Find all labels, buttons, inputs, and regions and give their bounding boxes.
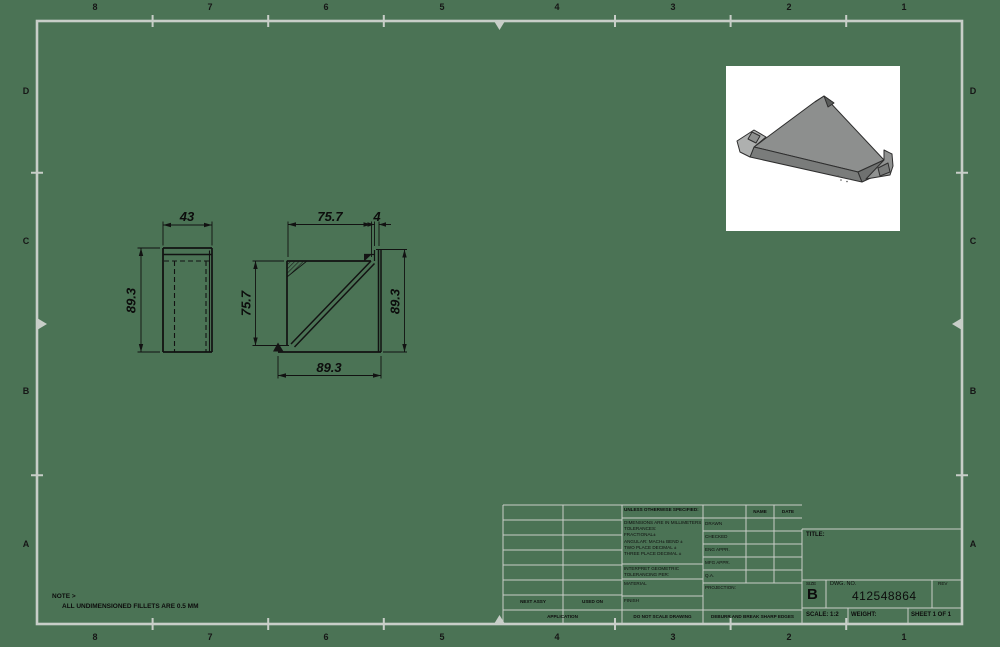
mfg-appr-row-label: MFG APPR. (705, 560, 730, 566)
used-on-label: USED ON (563, 599, 622, 605)
weight-label: WEIGHT: (851, 612, 876, 618)
deburr-label: DEBURR AND BREAK SHARP EDGES (703, 614, 802, 620)
material-label: MATERIAL (624, 581, 702, 587)
zone-label-top-1: 1 (897, 2, 911, 12)
engineering-drawing-sheet: 8 7 6 5 4 3 2 1 8 7 6 5 4 3 2 1 D C B A … (0, 0, 1000, 647)
rev-label: REV (938, 581, 947, 587)
drawn-row-label: DRAWN (705, 521, 722, 527)
title-block-lines (503, 505, 962, 624)
side-view-geometry (138, 222, 213, 353)
projection-label: PROJECTION: (705, 585, 736, 591)
do-not-scale-label: DO NOT SCALE DRAWING (622, 614, 703, 620)
zone-label-right-c: C (966, 236, 980, 246)
title-label: TITLE: (806, 531, 825, 539)
next-assy-label: NEXT ASSY (503, 599, 563, 605)
dim-front-right: 89.3 (388, 284, 403, 320)
zone-label-bottom-8: 8 (88, 632, 102, 642)
dim-front-left: 75.7 (239, 286, 254, 322)
zone-label-top-4: 4 (550, 2, 564, 12)
note-text: ALL UNDIMENSIONED FILLETS ARE 0.5 MM (62, 603, 199, 610)
dimension-arrowheads (139, 222, 407, 377)
zone-label-left-b: B (19, 386, 33, 396)
dim-front-flange: 4 (369, 209, 385, 224)
drawing-geometry-svg (0, 0, 1000, 647)
zone-label-bottom-7: 7 (203, 632, 217, 642)
zone-label-top-2: 2 (782, 2, 796, 12)
finish-label: FINISH (624, 598, 702, 604)
zone-label-top-8: 8 (88, 2, 102, 12)
dim-side-width: 43 (173, 209, 201, 224)
interpret-geometric-text: INTERPRET GEOMETRIC TOLERANCING PER: (624, 566, 702, 578)
front-view-geometry (253, 222, 408, 379)
zone-label-top-5: 5 (435, 2, 449, 12)
name-header: NAME (746, 509, 774, 515)
zone-label-right-b: B (966, 386, 980, 396)
eng-appr-row-label: ENG APPR. (705, 547, 730, 553)
zone-label-top-3: 3 (666, 2, 680, 12)
zone-label-left-a: A (19, 539, 33, 549)
zone-label-bottom-2: 2 (782, 632, 796, 642)
dwg-no-label: DWG. NO. (830, 581, 856, 588)
note-label: NOTE > (52, 593, 76, 600)
application-label: APPLICATION (503, 614, 622, 620)
tolerances-text: DIMENSIONS ARE IN MILLIMETERS TOLERANCES… (624, 520, 702, 557)
qa-row-label: Q.A. (705, 573, 714, 579)
dim-front-top: 75.7 (312, 209, 348, 224)
zone-label-left-c: C (19, 236, 33, 246)
zone-label-right-d: D (966, 86, 980, 96)
zone-label-bottom-5: 5 (435, 632, 449, 642)
dim-front-bottom: 89.3 (311, 360, 347, 375)
checked-row-label: CHECKED (705, 534, 727, 540)
zone-label-bottom-1: 1 (897, 632, 911, 642)
zone-label-top-6: 6 (319, 2, 333, 12)
sheet-number-label: SHEET 1 OF 1 (911, 612, 951, 618)
dim-side-height: 89.3 (124, 283, 139, 319)
scale-value: SCALE: 1:2 (806, 612, 839, 618)
unless-otherwise-specified: UNLESS OTHERWISE SPECIFIED: (624, 507, 702, 513)
zone-label-right-a: A (966, 539, 980, 549)
date-header: DATE (774, 509, 802, 515)
zone-label-bottom-6: 6 (319, 632, 333, 642)
dwg-number: 412548864 (852, 589, 917, 603)
zone-label-top-7: 7 (203, 2, 217, 12)
zone-label-bottom-4: 4 (550, 632, 564, 642)
size-value: B (807, 586, 818, 603)
zone-label-bottom-3: 3 (666, 632, 680, 642)
zone-label-left-d: D (19, 86, 33, 96)
